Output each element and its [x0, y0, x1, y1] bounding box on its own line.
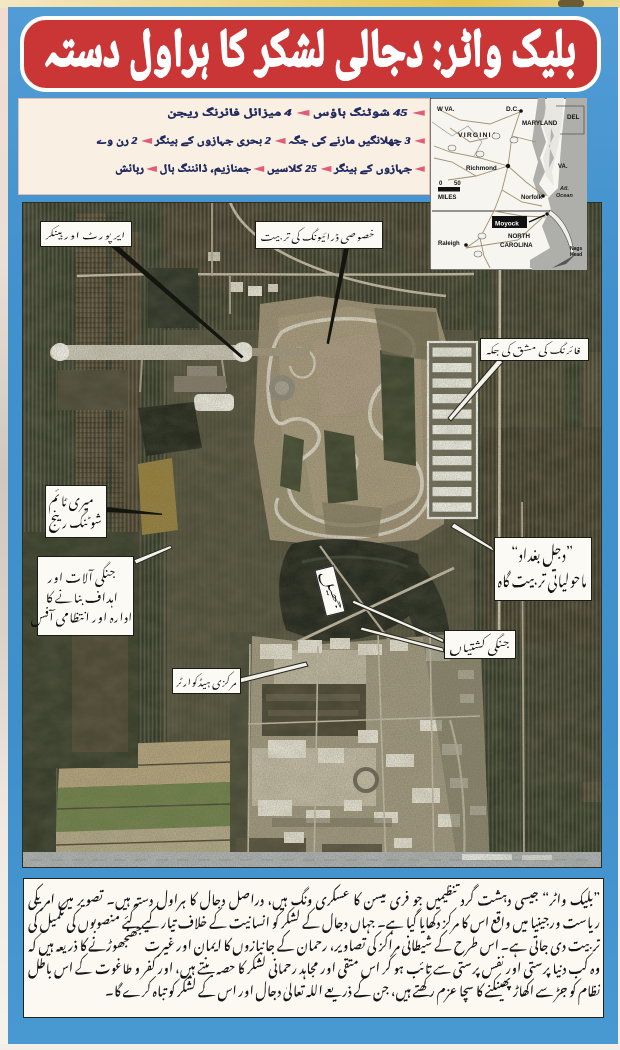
svg-text:VA.: VA.	[558, 164, 568, 170]
svg-text:Head: Head	[570, 252, 582, 258]
svg-text:DEL: DEL	[567, 114, 580, 121]
svg-text:Moyock: Moyock	[495, 221, 519, 228]
svg-text:D.C.: D.C.	[506, 106, 519, 113]
svg-text:Ocean: Ocean	[556, 193, 573, 199]
svg-text:W VA.: W VA.	[437, 106, 455, 113]
svg-text:MILES: MILES	[438, 195, 456, 201]
svg-text:Raleigh: Raleigh	[438, 241, 460, 247]
svg-text:50: 50	[454, 181, 461, 187]
svg-text:MARYLAND: MARYLAND	[522, 120, 558, 127]
svg-text:Atl.: Atl.	[559, 186, 569, 192]
svg-text:Norfolk: Norfolk	[521, 195, 543, 201]
svg-text:NORTH: NORTH	[508, 233, 531, 240]
svg-text:Richmond: Richmond	[466, 165, 497, 172]
svg-text:CAROLINA: CAROLINA	[500, 242, 533, 249]
